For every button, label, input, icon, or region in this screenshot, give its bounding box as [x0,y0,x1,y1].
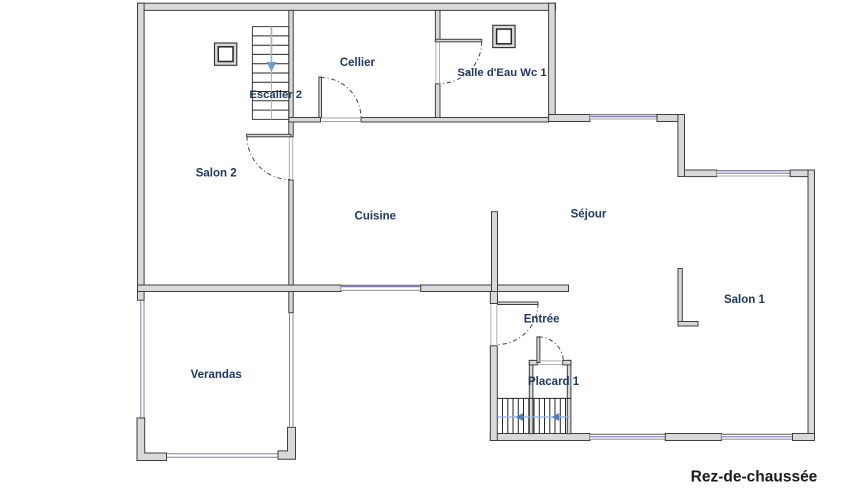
svg-text:Verandas: Verandas [191,369,242,381]
svg-text:Séjour: Séjour [571,208,607,220]
svg-text:Placard 1: Placard 1 [528,376,580,388]
svg-text:Salon 1: Salon 1 [724,294,766,306]
svg-text:Entrée: Entrée [524,313,560,325]
svg-text:Cellier: Cellier [340,57,376,69]
svg-text:Salon 2: Salon 2 [196,168,237,180]
svg-text:Salle d'Eau Wc 1: Salle d'Eau Wc 1 [457,67,546,79]
svg-text:Escalier 2: Escalier 2 [249,89,302,101]
svg-text:Rez-de-chaussée: Rez-de-chaussée [691,469,818,486]
svg-text:Cuisine: Cuisine [355,211,397,223]
